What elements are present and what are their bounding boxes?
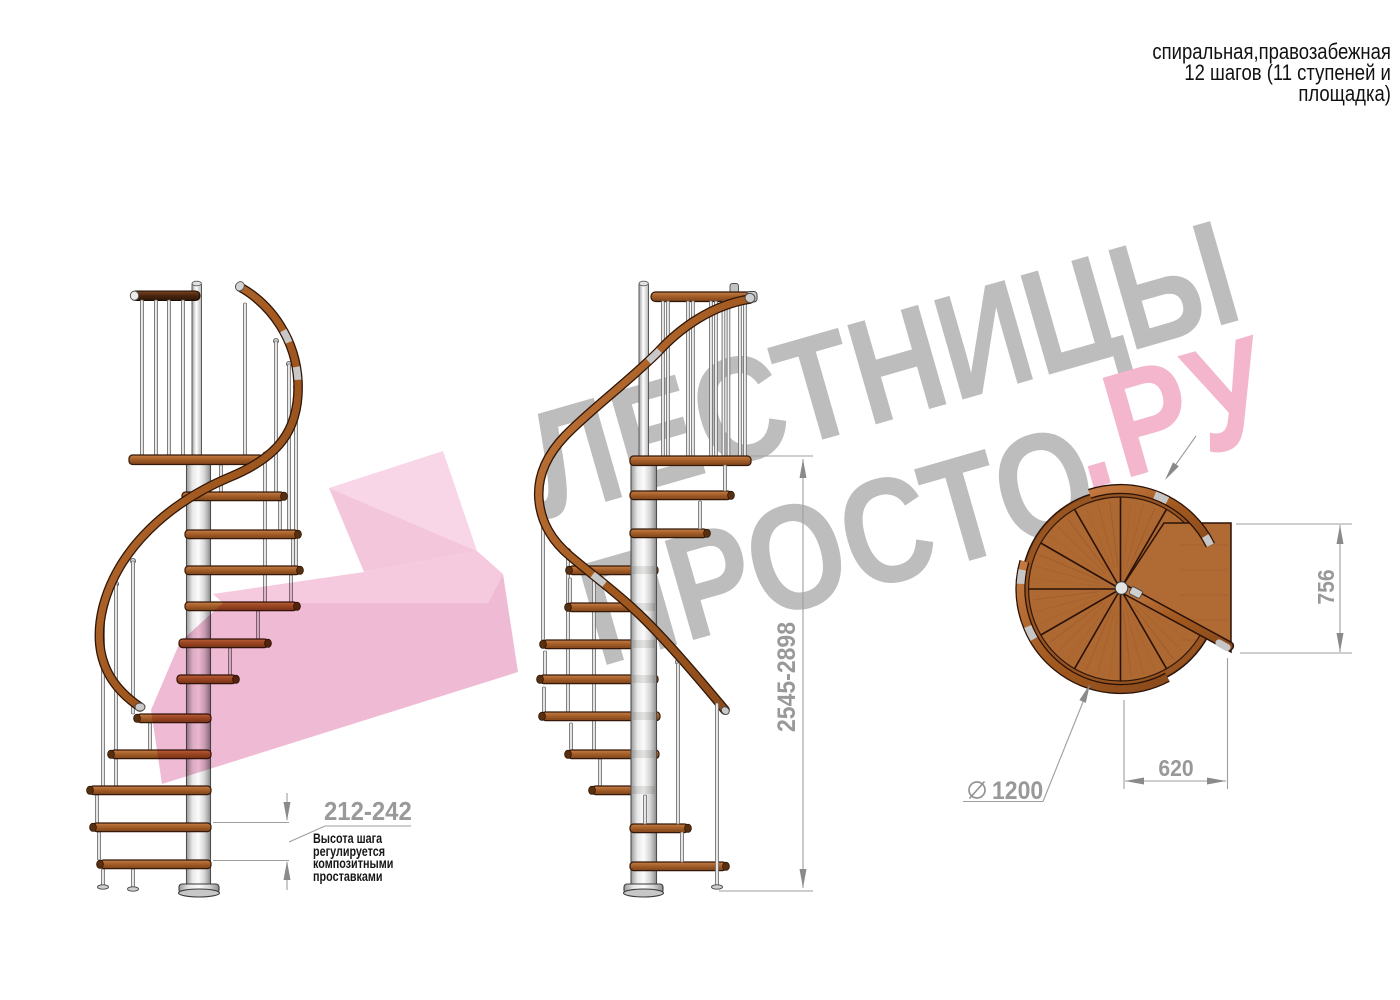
svg-text:756: 756 <box>1313 569 1339 604</box>
svg-text:620: 620 <box>1158 755 1193 781</box>
svg-text:1200: 1200 <box>992 777 1043 805</box>
svg-text:212-242: 212-242 <box>324 797 412 826</box>
svg-text:2545-2898: 2545-2898 <box>773 622 801 732</box>
